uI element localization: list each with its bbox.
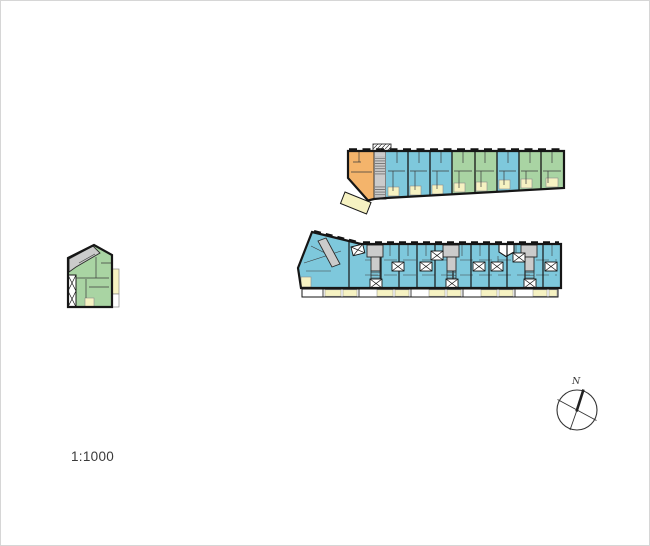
building-west-block — [68, 245, 119, 307]
building-south-block — [298, 232, 561, 298]
balcony-strip — [302, 289, 558, 297]
balcony — [301, 277, 311, 287]
compass-needle-tail — [570, 412, 577, 431]
compass-needle — [577, 390, 584, 412]
balcony — [85, 298, 94, 307]
plan-drawing: N — [1, 1, 650, 546]
scale-label: 1:1000 — [71, 449, 114, 464]
stair-treads — [375, 185, 385, 197]
plan-sheet: N 1:1000 — [0, 0, 650, 546]
compass-label: N — [571, 376, 581, 387]
stair-treads — [375, 156, 385, 176]
building-north-block — [341, 144, 565, 214]
elevator-shaft — [68, 275, 76, 307]
north-arrow: N — [557, 376, 597, 430]
